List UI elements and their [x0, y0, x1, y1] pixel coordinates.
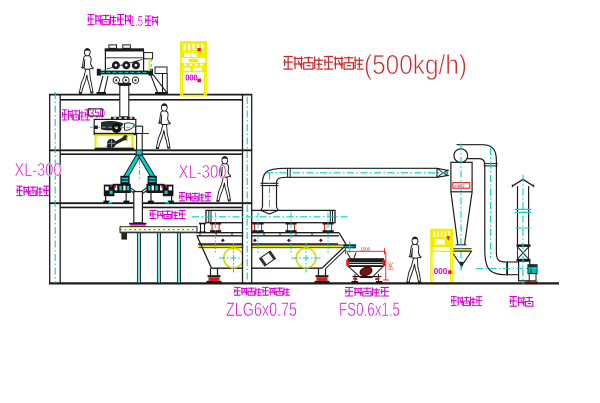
svg-text:#400: #400: [454, 183, 465, 188]
svg-text:(500kg/h): (500kg/h): [364, 49, 467, 80]
svg-text:FS0.6x1.5: FS0.6x1.5: [339, 300, 400, 321]
svg-text:350: 350: [89, 107, 105, 121]
svg-text:1500: 1500: [361, 246, 371, 251]
svg-text:345: 345: [387, 262, 393, 271]
svg-text:ZLG6x0.75: ZLG6x0.75: [226, 300, 297, 321]
svg-text:XL-300: XL-300: [179, 161, 227, 182]
svg-text:1.5: 1.5: [130, 14, 143, 30]
svg-text:000: 000: [185, 74, 198, 83]
svg-text:000: 000: [434, 266, 448, 276]
svg-text:XL-300: XL-300: [15, 159, 62, 180]
